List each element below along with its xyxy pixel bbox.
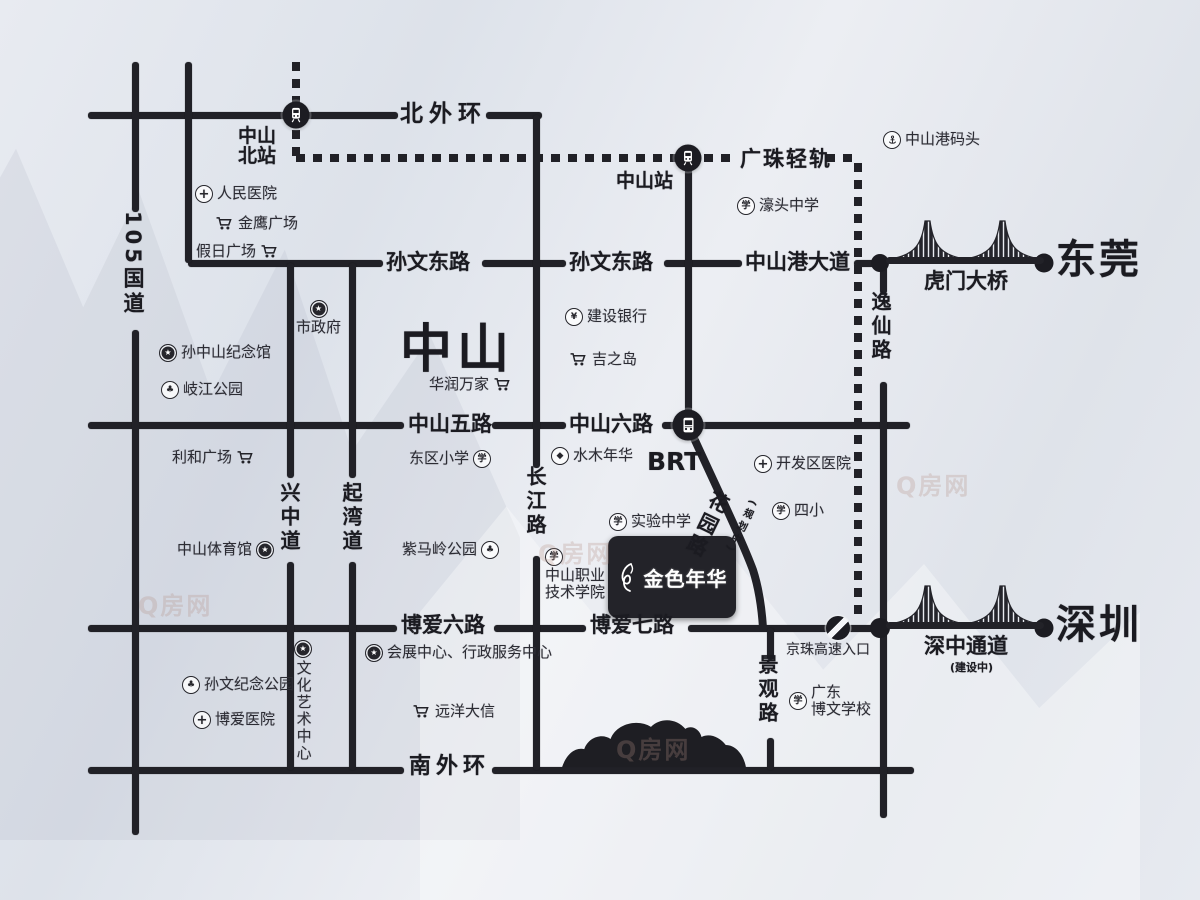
brt-station (673, 410, 704, 441)
shiyan-middle-school: 学实验中学 (609, 513, 691, 531)
hospital-cross-icon: + (195, 185, 213, 203)
sixiao-school-label: 四小 (794, 502, 824, 519)
zimaling-park-label: 紫马岭公园 (402, 541, 477, 558)
boai-hospital: +博爱医院 (193, 711, 275, 729)
yuanyang-daxin-label: 远洋大信 (435, 703, 495, 720)
watermark-3: Q房网 (896, 466, 970, 501)
label-changjiang-lu: 长江路 (524, 466, 545, 538)
shizhengfu-label: 市政府 (296, 319, 341, 336)
label-nanwaihuan: 南外环 (409, 755, 490, 778)
hospital-cross-icon: + (193, 711, 211, 729)
shopping-cart-icon (215, 216, 234, 231)
renmin-hospital: +人民医院 (195, 185, 277, 203)
jianshe-bank-label: 建设银行 (587, 308, 647, 325)
star-landmark-icon: ★ (256, 541, 274, 559)
shopping-cart-icon (569, 352, 588, 367)
huarun-wanjia: 华润万家 (429, 376, 512, 393)
shenzhong-corridor-drawing (886, 578, 1044, 630)
huarun-wanjia-label: 华润万家 (429, 376, 489, 393)
changjiang-lu-road-seg1 (533, 556, 540, 770)
jingguan-lu-road-seg1 (767, 738, 774, 770)
jinying-plaza-label: 金鹰广场 (238, 215, 298, 232)
location-map: 金色年华 北外环广珠轻轨孙文东路孙文东路中山港大道中山五路中山六路BRT博爱六路… (0, 0, 1200, 900)
label-yixian-lu: 逸仙路 (869, 291, 890, 363)
humen-bridge-city-label: 东莞 (1056, 239, 1142, 281)
sunzhongshan-memorial: ★孙中山纪念馆 (159, 344, 271, 362)
school-icon: 学 (545, 548, 563, 566)
anchor-icon (883, 131, 901, 149)
school-icon: 学 (772, 502, 790, 520)
label-guodao-105: 105国道 (122, 211, 144, 317)
shenzhong-corridor-label: 深中通道 (924, 635, 1008, 657)
zimaling-park: ♣紫马岭公园 (402, 541, 499, 559)
haotou-middle-school-label: 濠头中学 (759, 197, 819, 214)
label-qiwan-dao: 起湾道 (340, 482, 361, 554)
renmin-hospital-label: 人民医院 (217, 185, 277, 202)
zhongshan-vocational-college-label: 中山职业 技术学院 (545, 567, 605, 602)
wenhua-art-center-label: 文化艺术中心 (294, 660, 311, 762)
mountain-silhouette (558, 708, 750, 772)
humen-bridge-drawing (886, 213, 1044, 265)
huizhan-center-label: 会展中心、行政服务中心 (387, 644, 552, 661)
park-tree-icon: ♣ (182, 676, 200, 694)
label-xingzhong-dao: 兴中道 (278, 482, 299, 554)
zhongshangang-wharf-label: 中山港码头 (905, 131, 980, 148)
train-icon (679, 149, 698, 168)
kaifaqu-hospital: +开发区医院 (754, 455, 851, 473)
label-zhongshan-station: 中山站 (616, 172, 673, 192)
watermark-0: Q房网 (138, 586, 212, 621)
jingzhu-expressway-entrance-label: 京珠高速入口 (786, 642, 870, 658)
haotou-middle-school: 学濠头中学 (737, 197, 819, 215)
star-landmark-icon: ★ (159, 344, 177, 362)
station-spur-road-seg0 (685, 158, 692, 425)
label-zhongshan-wulu: 中山五路 (408, 413, 492, 435)
shopping-cart-icon (412, 704, 431, 719)
train-icon (287, 106, 306, 125)
jiari-plaza: 假日广场 (196, 243, 279, 260)
sunwen-donglu-road-seg2 (664, 260, 742, 267)
school-icon: 学 (609, 513, 627, 531)
light-rail-v1-seg0 (854, 163, 862, 618)
shopping-cart-icon (236, 450, 255, 465)
school-icon: 学 (789, 692, 807, 710)
shuimu-nianhua: ◆水木年华 (551, 447, 633, 465)
school-icon: 学 (473, 450, 491, 468)
school-icon: 学 (737, 197, 755, 215)
dongqu-primary-school-label: 东区小学 (409, 450, 469, 467)
project-name: 金色年华 (644, 563, 728, 592)
shizhengfu: ★市政府 (296, 300, 341, 336)
star-landmark-icon: ★ (310, 300, 328, 318)
sunwen-donglu-road-seg1 (482, 260, 566, 267)
qiwan-dao-road-seg1 (349, 562, 356, 770)
jinying-plaza: 金鹰广场 (215, 215, 298, 232)
zhongshan-gym-label: 中山体育馆 (177, 541, 252, 558)
boai-road-seg2 (688, 625, 880, 632)
zhongshangang-wharf: 中山港码头 (883, 131, 980, 149)
qijiang-park: ♣岐江公园 (161, 381, 243, 399)
sunzhongshan-memorial-label: 孙中山纪念馆 (181, 344, 271, 361)
sunwen-memorial-park: ♣孙文纪念公园 (182, 676, 294, 694)
guodao-105-road-seg1 (132, 330, 139, 835)
boai-road-seg1 (494, 625, 586, 632)
yixian-lu-road-seg2 (880, 632, 887, 818)
shopping-cart-icon (260, 244, 279, 259)
bowen-school-label: 广东 博文学校 (811, 684, 871, 719)
star-landmark-icon: ★ (294, 640, 312, 658)
jizhidao: 吉之岛 (569, 351, 637, 368)
zhongshan-vocational-college: 学中山职业 技术学院 (545, 548, 605, 602)
kaifaqu-hospital-label: 开发区医院 (776, 455, 851, 472)
qijiang-park-label: 岐江公园 (183, 381, 243, 398)
label-zhongshangang-dadao: 中山港大道 (745, 251, 850, 273)
label-sunwen-donglu-east: 孙文东路 (569, 251, 653, 273)
label-guangzhu-qinggui: 广珠轻轨 (740, 148, 832, 170)
wenhua-art-center: ★文化艺术中心 (294, 640, 312, 762)
boai-hospital-label: 博爱医院 (215, 711, 275, 728)
shuimu-nianhua-label: 水木年华 (573, 447, 633, 464)
label-zhongshan-city: 中山 (400, 323, 514, 378)
label-jingguan-lu: 景观路 (756, 654, 777, 726)
bus-icon (677, 414, 699, 436)
lihe-plaza: 利和广场 (172, 449, 255, 466)
jianshe-bank: ¥建设银行 (565, 308, 647, 326)
jizhidao-label: 吉之岛 (592, 351, 637, 368)
zhongshan-wulu-liulu-road-seg1 (492, 422, 566, 429)
shiyan-middle-school-label: 实验中学 (631, 513, 691, 530)
residence-icon: ◆ (551, 447, 569, 465)
star-landmark-icon: ★ (365, 644, 383, 662)
park-tree-icon: ♣ (161, 381, 179, 399)
jingzhu-expressway-entrance (826, 616, 850, 640)
shopping-cart-icon (493, 377, 512, 392)
jingzhu-expressway-entrance-label-label: 京珠高速入口 (786, 642, 870, 658)
changjiang-lu-road-seg0 (533, 115, 540, 468)
park-tree-icon: ♣ (481, 541, 499, 559)
label-zhongshan-liulu: 中山六路 (569, 413, 653, 435)
humen-bridge-label: 虎门大桥 (924, 270, 1008, 292)
jiari-plaza-label: 假日广场 (196, 243, 256, 260)
label-sunwen-donglu-west: 孙文东路 (386, 251, 470, 273)
west-road-seg0 (185, 62, 192, 263)
bank-icon: ¥ (565, 308, 583, 326)
shenzhong-corridor-sublabel: (建设中) (950, 662, 993, 674)
xingzhong-dao-road-seg1 (287, 562, 294, 770)
zhongshan-station (675, 145, 702, 172)
sixiao-school: 学四小 (772, 502, 824, 520)
light-rail-h0-seg0 (296, 154, 738, 162)
shenzhong-corridor-city-label: 深圳 (1056, 604, 1142, 646)
label-zhongshanbei-station: 中山 北站 (238, 127, 276, 167)
sunwen-memorial-park-label: 孙文纪念公园 (204, 676, 294, 693)
huizhan-center: ★会展中心、行政服务中心 (365, 644, 552, 662)
xingzhong-dao-road-seg0 (287, 263, 294, 478)
lihe-plaza-label: 利和广场 (172, 449, 232, 466)
project-logo-icon (617, 560, 639, 594)
hospital-cross-icon: + (754, 455, 772, 473)
project-badge: 金色年华 (608, 536, 736, 618)
yuanyang-daxin: 远洋大信 (412, 703, 495, 720)
label-beiwaihuan: 北外环 (400, 102, 487, 126)
label-boai-qilu: 博爱七路 (590, 614, 674, 636)
qiwan-dao-road-seg0 (349, 263, 356, 478)
zhongshan-gym: ★中山体育馆 (177, 541, 274, 559)
zhongshanbei-station (283, 102, 310, 129)
guodao-105-road-seg0 (132, 62, 139, 212)
bowen-school: 学广东 博文学校 (789, 684, 871, 719)
label-boai-liulu: 博爱六路 (401, 614, 485, 636)
dongqu-primary-school: 学东区小学 (409, 450, 491, 468)
label-brt: BRT (647, 449, 701, 475)
